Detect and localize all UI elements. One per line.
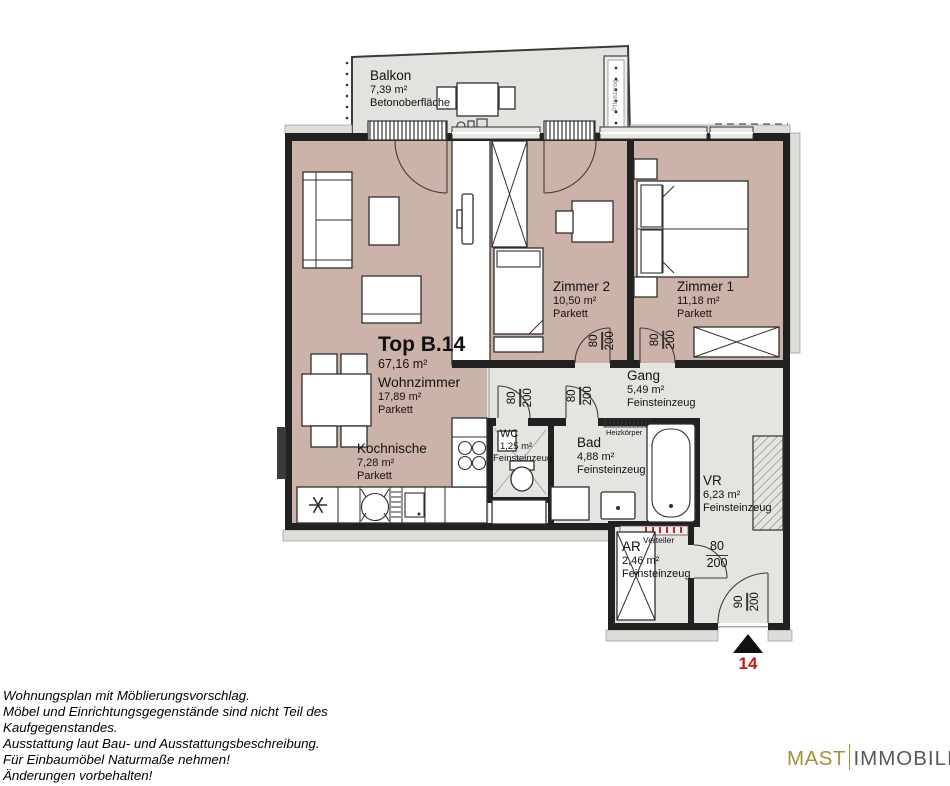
room-label-zimmer1: Zimmer 1 11,18 m² Parkett bbox=[677, 279, 734, 322]
entrance-opening bbox=[718, 623, 768, 630]
radiator bbox=[604, 419, 650, 427]
entrance-arrow bbox=[733, 634, 763, 653]
floorplan-page: Balkon 7,39 m² Betonoberfläche Top B.14 … bbox=[0, 0, 950, 786]
disclaimer-line: Änderungen vorbehalten! bbox=[3, 768, 328, 784]
balcony-chair bbox=[499, 87, 515, 109]
room-label-kochnische: Kochnische 7,28 m² Parkett bbox=[357, 441, 427, 484]
label-pflanztrog: Pflanztrog bbox=[613, 75, 619, 115]
bath-cabinet bbox=[551, 487, 589, 520]
unit-and-livingroom-label: Top B.14 67,16 m² Wohnzimmer 17,89 m² Pa… bbox=[378, 333, 465, 417]
logo-text-immobilien: IMMOBILIEN bbox=[853, 747, 950, 771]
room-label-wc: WC 1,25 m² Feinsteinzeug bbox=[500, 428, 552, 464]
radiator-west bbox=[277, 427, 286, 479]
desk bbox=[572, 201, 613, 242]
room-label-balkon: Balkon 7,39 m² Betonoberfläche bbox=[370, 68, 450, 111]
toilet bbox=[511, 467, 533, 491]
unit-number-marker: 14 bbox=[733, 654, 763, 674]
disclaimer-line: Ausstattung laut Bau- und Ausstattungsbe… bbox=[3, 736, 328, 752]
room-label-gang: Gang 5,49 m² Feinsteinzeug bbox=[627, 368, 696, 411]
logo-divider bbox=[849, 744, 851, 770]
company-logo: MAST IMMOBILIEN bbox=[787, 747, 950, 771]
logo-text-mast: MAST bbox=[787, 747, 846, 771]
dining-chair bbox=[311, 426, 337, 447]
floorplan-graphic bbox=[0, 0, 950, 786]
windows bbox=[368, 121, 753, 140]
room-label-vr: VR 6,23 m² Feinsteinzeug bbox=[703, 473, 772, 516]
disclaimer-line: Möbel und Einrichtungsgegenstände sind n… bbox=[3, 704, 328, 720]
installation-shaft bbox=[452, 139, 490, 365]
door-size-zimmer2: 80200 bbox=[588, 326, 616, 356]
room-label-ar: AR 2,46 m² Feinsteinzeug bbox=[622, 539, 691, 582]
balcony-door-grille bbox=[368, 121, 447, 140]
unit-area: 67,16 m² bbox=[378, 357, 465, 372]
door-size-wc: 80200 bbox=[506, 383, 534, 413]
nightstand bbox=[634, 277, 657, 297]
desk-chair bbox=[556, 211, 573, 233]
single-bed bbox=[494, 248, 543, 334]
door-size-entrance: 90200 bbox=[733, 587, 761, 617]
room-label-bad: Bad 4,88 m² Feinsteinzeug bbox=[577, 435, 646, 478]
nightstand bbox=[634, 159, 657, 179]
washing-machine bbox=[492, 500, 546, 524]
label-verteiler: Verteiler bbox=[643, 535, 674, 545]
disclaimer-line: Wohnungsplan mit Möblierungsvorschlag. bbox=[3, 688, 328, 704]
label-heizkoerper: Heizkörper bbox=[606, 428, 642, 437]
dining-table bbox=[302, 374, 371, 426]
tv-panel bbox=[462, 194, 473, 244]
door-size-zimmer1: 80200 bbox=[649, 325, 677, 355]
room-label-zimmer2: Zimmer 2 10,50 m² Parkett bbox=[553, 279, 610, 322]
armchair bbox=[362, 276, 421, 323]
balcony-table bbox=[457, 83, 498, 116]
door-size-ar: 80200 bbox=[700, 540, 734, 571]
disclaimer-line: Kaufgegenstandes. bbox=[3, 720, 328, 736]
unit-title: Top B.14 bbox=[378, 333, 465, 357]
disclaimer: Wohnungsplan mit Möblierungsvorschlag. M… bbox=[3, 688, 328, 783]
coffee-table bbox=[369, 197, 399, 245]
door-size-bad: 80200 bbox=[566, 381, 594, 411]
balcony-edge-dots bbox=[346, 62, 349, 131]
dining-chair bbox=[341, 354, 367, 375]
balcony-door-grille bbox=[544, 121, 595, 140]
washbasin bbox=[601, 492, 635, 519]
disclaimer-line: Für Einbaumöbel Naturmaße nehmen! bbox=[3, 752, 328, 768]
dining-chair bbox=[311, 354, 337, 375]
